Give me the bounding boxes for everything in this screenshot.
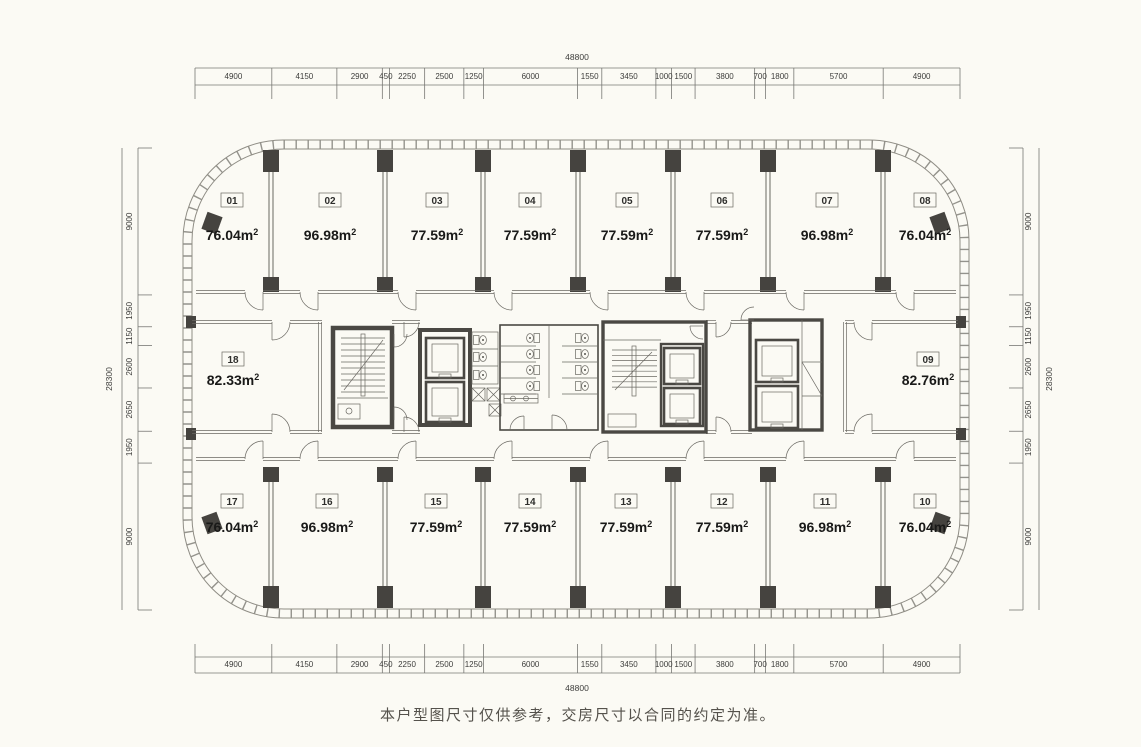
svg-text:1150: 1150 — [1024, 327, 1033, 345]
svg-text:700: 700 — [753, 660, 767, 669]
floor-plan-drawing: 0176.04m20296.98m20377.59m20477.59m20577… — [0, 0, 1141, 747]
unit-11: 1196.98m2 — [799, 494, 852, 535]
svg-text:3450: 3450 — [620, 660, 638, 669]
door-swings — [245, 292, 914, 459]
svg-text:1250: 1250 — [465, 660, 483, 669]
svg-text:77.59m2: 77.59m2 — [410, 519, 463, 535]
svg-text:4150: 4150 — [295, 660, 313, 669]
svg-text:17: 17 — [226, 497, 238, 508]
svg-text:02: 02 — [324, 196, 336, 207]
unit-09: 0982.76m2 — [902, 352, 955, 388]
svg-text:450: 450 — [379, 72, 393, 81]
unit-02: 0296.98m2 — [304, 193, 357, 243]
svg-text:3800: 3800 — [716, 72, 734, 81]
svg-text:1800: 1800 — [771, 72, 789, 81]
unit-15: 1577.59m2 — [410, 494, 463, 535]
svg-text:76.04m2: 76.04m2 — [206, 227, 259, 243]
svg-text:1800: 1800 — [771, 660, 789, 669]
svg-text:76.04m2: 76.04m2 — [899, 227, 952, 243]
svg-text:76.04m2: 76.04m2 — [899, 519, 952, 535]
svg-text:1150: 1150 — [125, 327, 134, 345]
dimension-total-top: 48800 — [565, 52, 589, 62]
svg-text:77.59m2: 77.59m2 — [696, 227, 749, 243]
svg-text:4150: 4150 — [295, 72, 313, 81]
disclaimer-text: 本户型图尺寸仅供参考，交房尺寸以合同的约定为准。 — [380, 706, 776, 724]
svg-text:05: 05 — [621, 196, 633, 207]
svg-text:14: 14 — [524, 497, 536, 508]
svg-text:2250: 2250 — [398, 72, 416, 81]
svg-text:15: 15 — [430, 497, 442, 508]
svg-text:4900: 4900 — [225, 72, 243, 81]
svg-text:12: 12 — [716, 497, 728, 508]
svg-text:77.59m2: 77.59m2 — [504, 227, 557, 243]
svg-text:1500: 1500 — [674, 72, 692, 81]
svg-text:1000: 1000 — [655, 660, 673, 669]
svg-text:700: 700 — [753, 72, 767, 81]
svg-text:2900: 2900 — [351, 660, 369, 669]
floorplan-page: 0176.04m20296.98m20377.59m20477.59m20577… — [0, 0, 1141, 747]
svg-text:1550: 1550 — [581, 72, 599, 81]
svg-text:09: 09 — [922, 355, 934, 366]
svg-text:1550: 1550 — [581, 660, 599, 669]
svg-text:1950: 1950 — [125, 438, 134, 456]
svg-text:2650: 2650 — [1024, 400, 1033, 418]
svg-text:9000: 9000 — [1024, 212, 1033, 230]
svg-text:77.59m2: 77.59m2 — [696, 519, 749, 535]
svg-text:77.59m2: 77.59m2 — [600, 519, 653, 535]
svg-text:96.98m2: 96.98m2 — [799, 519, 852, 535]
svg-text:3800: 3800 — [716, 660, 734, 669]
svg-text:2650: 2650 — [125, 400, 134, 418]
svg-text:18: 18 — [227, 355, 239, 366]
svg-text:2250: 2250 — [398, 660, 416, 669]
unit-06: 0677.59m2 — [696, 193, 749, 243]
unit-16: 1696.98m2 — [301, 494, 354, 535]
svg-text:5700: 5700 — [830, 660, 848, 669]
unit-07: 0796.98m2 — [801, 193, 854, 243]
svg-text:1500: 1500 — [674, 660, 692, 669]
unit-05: 0577.59m2 — [601, 193, 654, 243]
svg-text:77.59m2: 77.59m2 — [504, 519, 557, 535]
svg-text:6000: 6000 — [522, 72, 540, 81]
svg-text:07: 07 — [821, 196, 833, 207]
svg-text:9000: 9000 — [1024, 527, 1033, 545]
svg-text:450: 450 — [379, 660, 393, 669]
svg-text:77.59m2: 77.59m2 — [601, 227, 654, 243]
svg-text:10: 10 — [919, 497, 931, 508]
unit-12: 1277.59m2 — [696, 494, 749, 535]
svg-text:1950: 1950 — [125, 301, 134, 319]
dimension-total-bottom: 48800 — [565, 683, 589, 693]
svg-text:4900: 4900 — [913, 660, 931, 669]
dimension-total-left: 28300 — [104, 367, 114, 391]
svg-text:1950: 1950 — [1024, 438, 1033, 456]
svg-text:96.98m2: 96.98m2 — [801, 227, 854, 243]
svg-text:2600: 2600 — [125, 357, 134, 375]
svg-text:96.98m2: 96.98m2 — [301, 519, 354, 535]
svg-text:76.04m2: 76.04m2 — [206, 519, 259, 535]
unit-04: 0477.59m2 — [504, 193, 557, 243]
unit-13: 1377.59m2 — [600, 494, 653, 535]
svg-text:1000: 1000 — [655, 72, 673, 81]
svg-text:01: 01 — [226, 196, 238, 207]
svg-text:06: 06 — [716, 196, 728, 207]
unit-14: 1477.59m2 — [504, 494, 557, 535]
dimension-total-right: 28300 — [1044, 367, 1054, 391]
svg-text:08: 08 — [919, 196, 931, 207]
svg-text:9000: 9000 — [125, 527, 134, 545]
svg-text:3450: 3450 — [620, 72, 638, 81]
svg-text:4900: 4900 — [913, 72, 931, 81]
svg-text:2500: 2500 — [435, 72, 453, 81]
svg-text:6000: 6000 — [522, 660, 540, 669]
svg-text:03: 03 — [431, 196, 443, 207]
svg-text:1950: 1950 — [1024, 301, 1033, 319]
svg-text:2900: 2900 — [351, 72, 369, 81]
svg-text:11: 11 — [820, 497, 831, 508]
svg-text:2600: 2600 — [1024, 357, 1033, 375]
svg-text:13: 13 — [620, 497, 632, 508]
building-structure — [186, 150, 966, 608]
svg-text:2500: 2500 — [435, 660, 453, 669]
svg-text:5700: 5700 — [830, 72, 848, 81]
unit-10: 1076.04m2 — [899, 494, 952, 535]
svg-text:77.59m2: 77.59m2 — [411, 227, 464, 243]
svg-text:82.33m2: 82.33m2 — [207, 372, 260, 388]
unit-18: 1882.33m2 — [207, 352, 260, 388]
svg-text:16: 16 — [321, 497, 333, 508]
svg-text:04: 04 — [524, 196, 536, 207]
svg-text:82.76m2: 82.76m2 — [902, 372, 955, 388]
svg-text:1250: 1250 — [465, 72, 483, 81]
svg-text:96.98m2: 96.98m2 — [304, 227, 357, 243]
svg-text:9000: 9000 — [125, 212, 134, 230]
svg-text:4900: 4900 — [225, 660, 243, 669]
unit-03: 0377.59m2 — [411, 193, 464, 243]
